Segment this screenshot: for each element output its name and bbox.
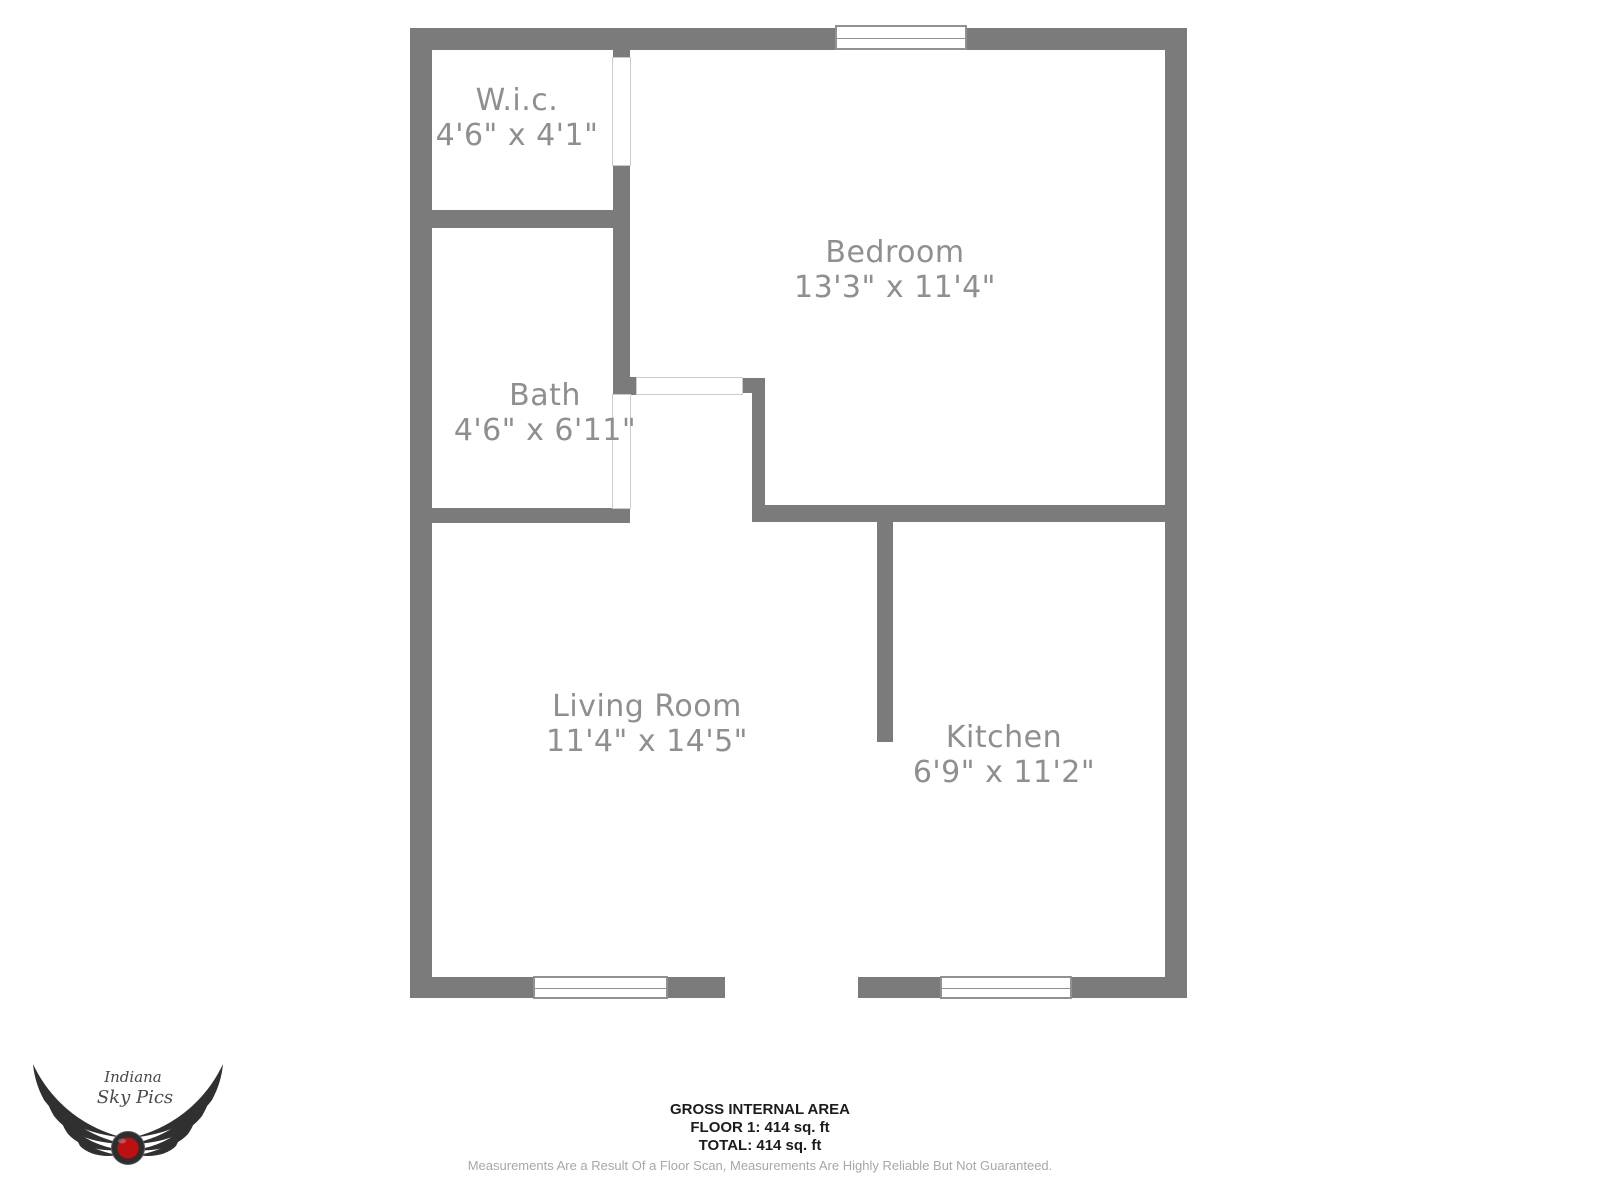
wall-bedroom-jamb bbox=[752, 393, 765, 522]
wall-wic-bottom bbox=[432, 210, 630, 228]
wall-top-right-segment bbox=[967, 28, 1187, 50]
window-icon-top bbox=[835, 25, 967, 50]
wall-bath-bottom bbox=[432, 508, 630, 523]
room-label-bath: Bath 4'6" x 6'11" bbox=[395, 378, 695, 448]
total-area-line: TOTAL: 414 sq. ft bbox=[400, 1137, 1120, 1155]
wall-wic-bath-right bbox=[613, 165, 630, 395]
room-label-wic: W.i.c. 4'6" x 4'1" bbox=[367, 83, 667, 153]
room-label-kitchen: Kitchen 6'9" x 11'2" bbox=[854, 720, 1154, 790]
room-name: Bedroom bbox=[745, 235, 1045, 270]
window-icon-bottom-right bbox=[940, 976, 1072, 999]
room-dims: 4'6" x 6'11" bbox=[395, 413, 695, 448]
window-icon-bottom-left bbox=[533, 976, 668, 999]
room-label-living: Living Room 11'4" x 14'5" bbox=[497, 689, 797, 759]
room-name: Living Room bbox=[497, 689, 797, 724]
room-dims: 6'9" x 11'2" bbox=[854, 755, 1154, 790]
floor-plan: W.i.c. 4'6" x 4'1" Bath 4'6" x 6'11" Bed… bbox=[0, 0, 1600, 1200]
logo-text-line2: Sky Pics bbox=[97, 1087, 173, 1108]
company-logo: Indiana Sky Pics bbox=[30, 1042, 230, 1187]
area-summary: GROSS INTERNAL AREA FLOOR 1: 414 sq. ft … bbox=[400, 1101, 1120, 1176]
room-dims: 13'3" x 11'4" bbox=[745, 270, 1045, 305]
wall-bedroom-jamb-head bbox=[742, 378, 765, 393]
room-name: W.i.c. bbox=[367, 83, 667, 118]
logo-lens-icon bbox=[112, 1132, 145, 1165]
room-name: Kitchen bbox=[854, 720, 1154, 755]
room-name: Bath bbox=[395, 378, 695, 413]
room-dims: 11'4" x 14'5" bbox=[497, 724, 797, 759]
wall-left bbox=[410, 28, 432, 998]
gross-internal-area-title: GROSS INTERNAL AREA bbox=[400, 1101, 1120, 1119]
wall-kitchen-divider bbox=[877, 522, 893, 742]
measurement-disclaimer: Measurements Are a Result Of a Floor Sca… bbox=[400, 1155, 1120, 1176]
room-label-bedroom: Bedroom 13'3" x 11'4" bbox=[745, 235, 1045, 305]
logo-text-line1: Indiana bbox=[103, 1068, 162, 1086]
wall-bedroom-bottom bbox=[752, 505, 1187, 522]
wall-top-left-segment bbox=[410, 28, 835, 50]
room-dims: 4'6" x 4'1" bbox=[367, 118, 667, 153]
floor-area-line: FLOOR 1: 414 sq. ft bbox=[400, 1119, 1120, 1137]
wings-logo-icon: Indiana Sky Pics bbox=[30, 1042, 230, 1187]
